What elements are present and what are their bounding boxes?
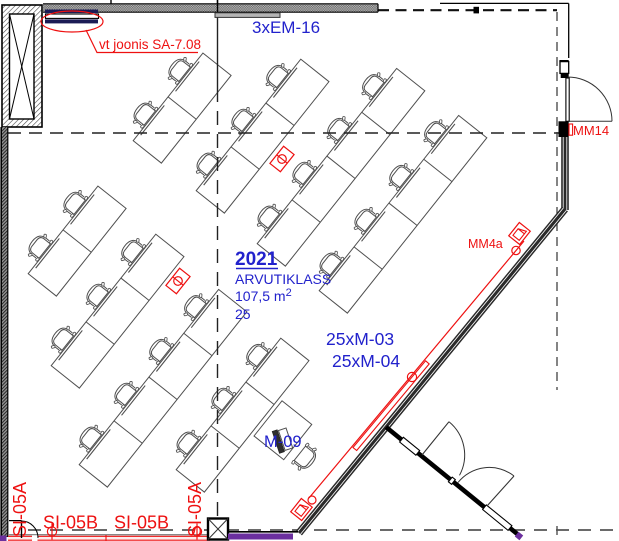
svg-text:3xEM-16: 3xEM-16 xyxy=(252,18,320,37)
svg-text:107,5 m2: 107,5 m2 xyxy=(235,287,292,304)
svg-text:SI-05B: SI-05B xyxy=(43,513,98,533)
svg-text:SI-05B: SI-05B xyxy=(114,513,169,533)
svg-text:vt joonis SA-7.08: vt joonis SA-7.08 xyxy=(99,37,201,52)
svg-text:MM14: MM14 xyxy=(573,123,609,138)
svg-text:MM4a: MM4a xyxy=(468,237,503,251)
svg-text:ARVUTIKLASS: ARVUTIKLASS xyxy=(235,271,331,287)
svg-text:SI-05A: SI-05A xyxy=(185,482,205,537)
svg-text:25: 25 xyxy=(235,306,251,322)
svg-text:2021: 2021 xyxy=(235,249,278,270)
svg-text:25xM-04: 25xM-04 xyxy=(332,351,400,371)
svg-text:SI-05A: SI-05A xyxy=(10,482,30,537)
svg-text:25xM-03: 25xM-03 xyxy=(326,329,394,349)
svg-text:M-09: M-09 xyxy=(264,433,302,451)
